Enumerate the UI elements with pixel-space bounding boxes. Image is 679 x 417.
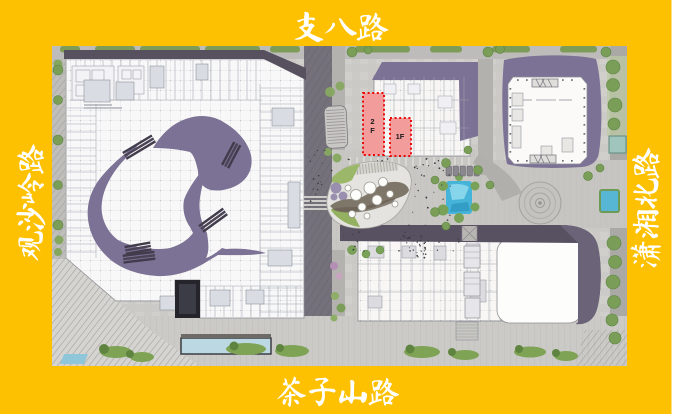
svg-text:2: 2 xyxy=(370,117,374,126)
svg-text:F: F xyxy=(370,126,375,135)
svg-text:1F: 1F xyxy=(396,132,405,141)
